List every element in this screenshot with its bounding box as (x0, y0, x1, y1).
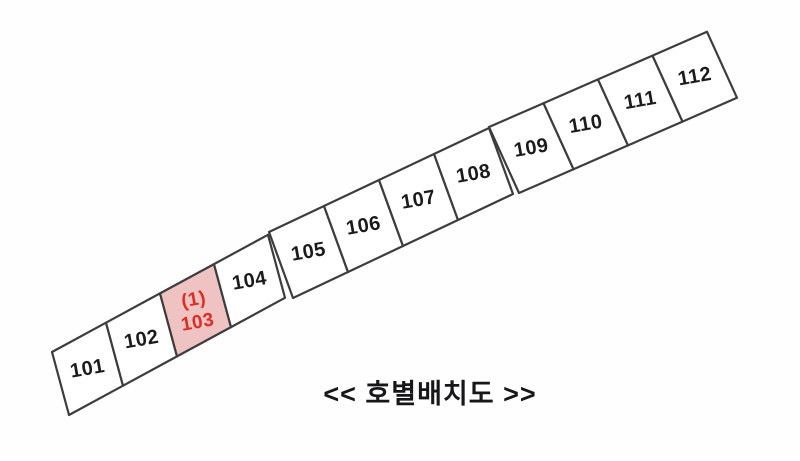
layout-svg: 101102(1)103104105106107108109110111112 … (0, 0, 800, 461)
diagram-caption: << 호별배치도 >> (323, 379, 536, 409)
page-background: { "caption": "<< 호별배치도 >>", "units": [ {… (0, 0, 800, 461)
unit-layout-diagram: 101102(1)103104105106107108109110111112 … (0, 0, 800, 461)
unit-cells-group: 101102(1)103104105106107108109110111112 (52, 32, 737, 415)
